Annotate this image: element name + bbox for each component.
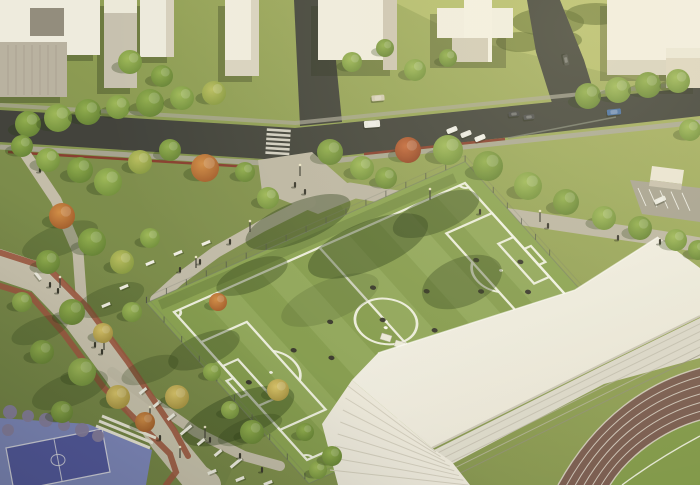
scene-canvas — [0, 0, 700, 485]
aerial-render: Aerial architectural rendering of a spor… — [0, 0, 700, 485]
